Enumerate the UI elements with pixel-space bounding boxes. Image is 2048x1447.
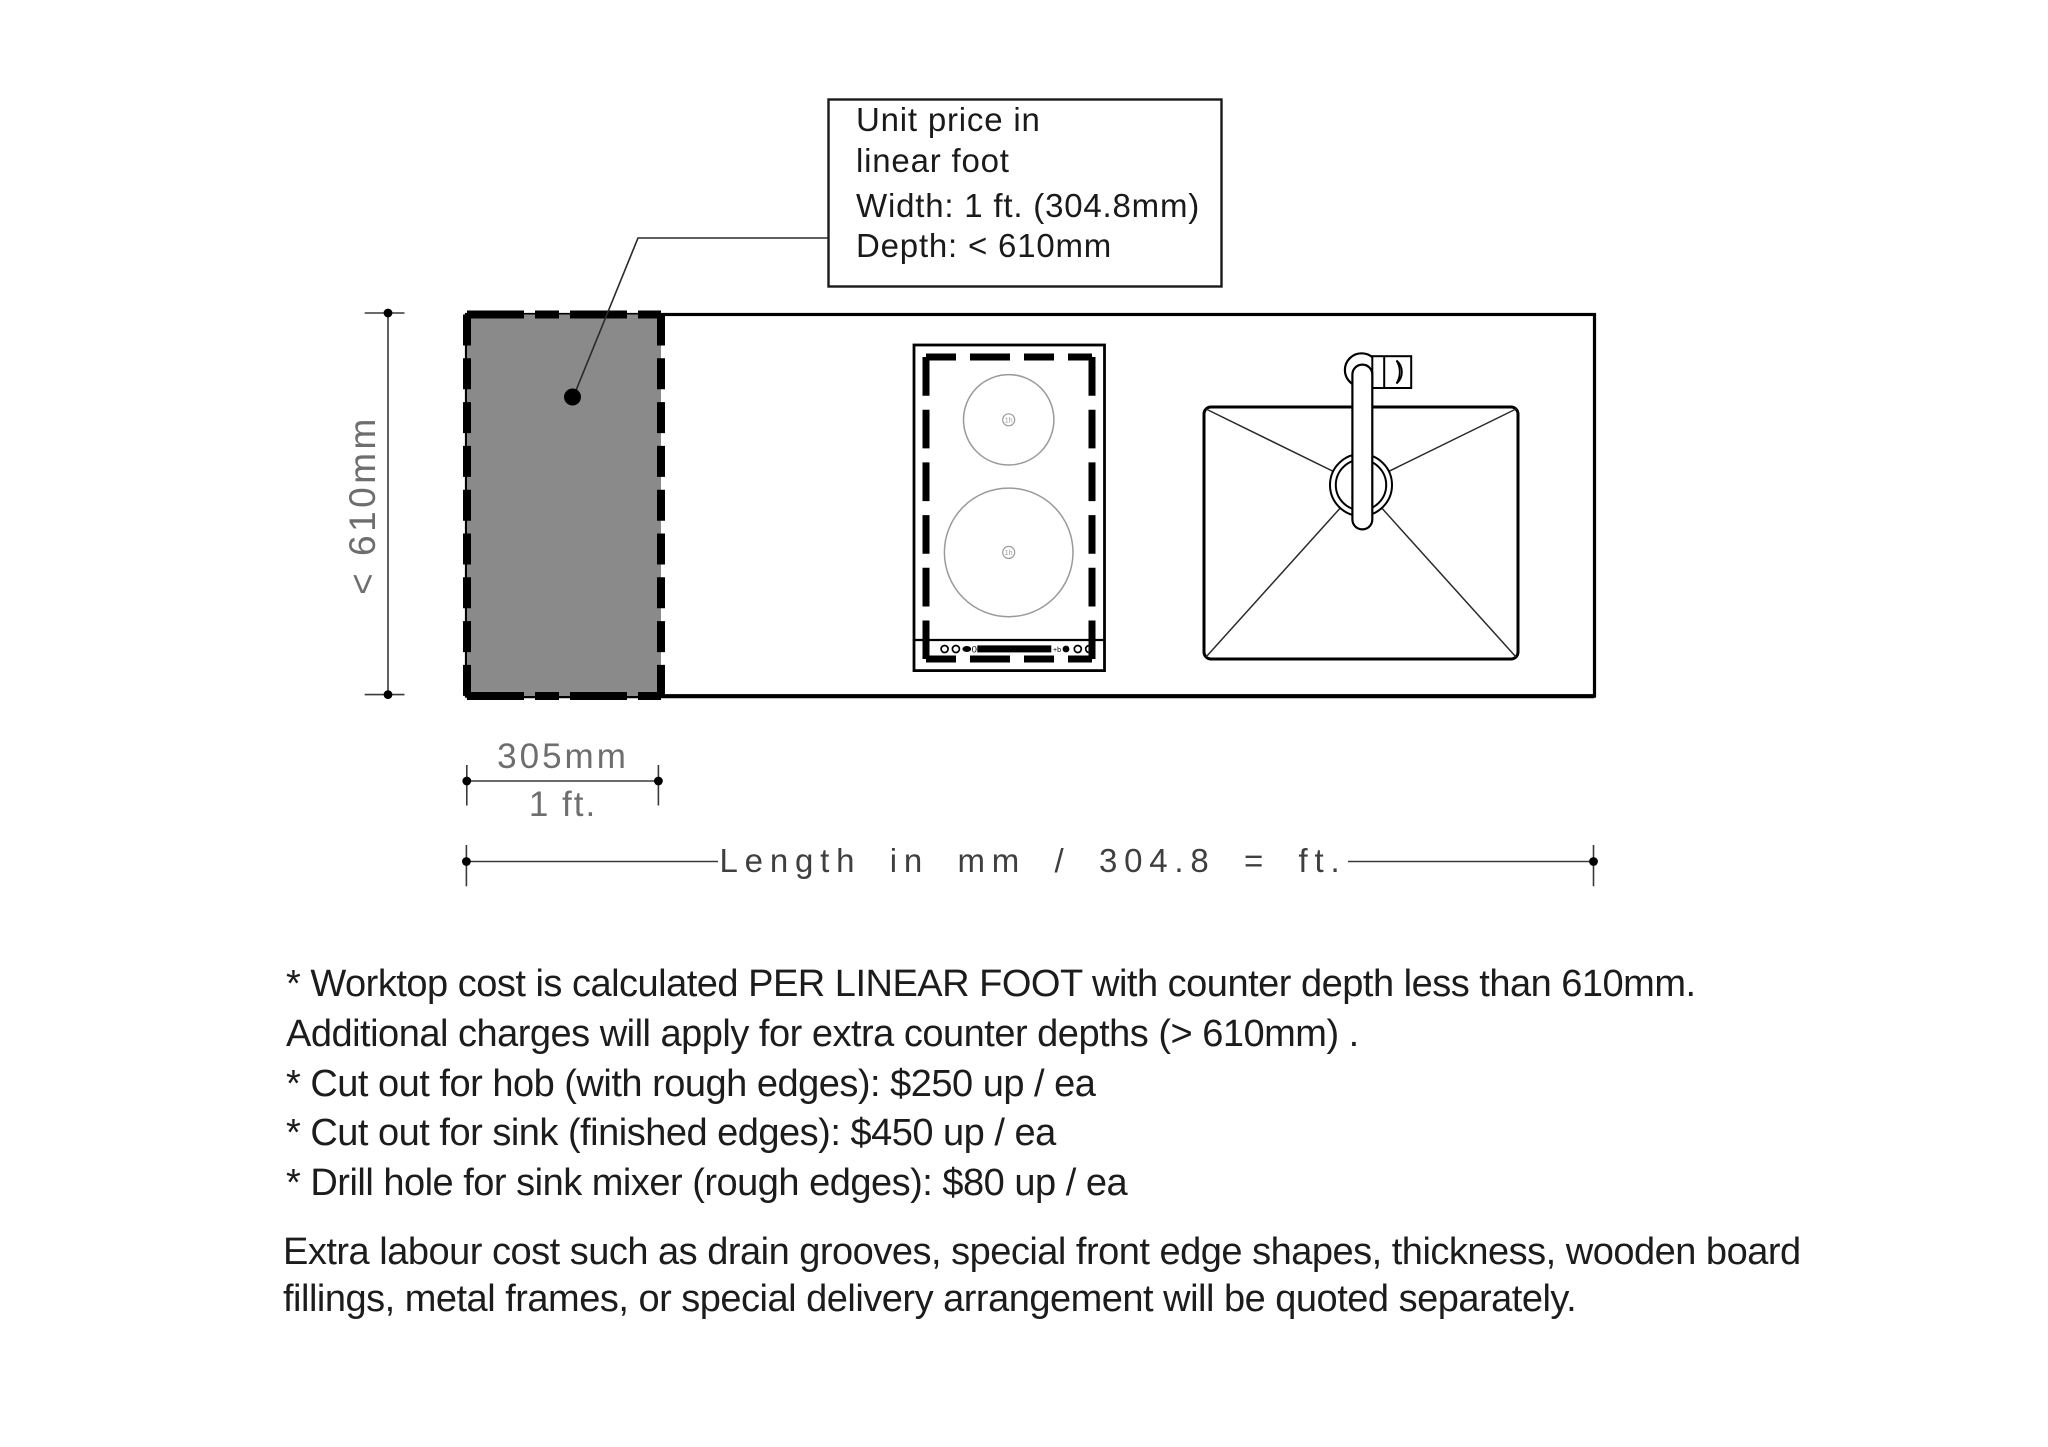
svg-text:Depth: < 610mm: Depth: < 610mm [856,227,1112,264]
svg-text:Unit price in: Unit price in [856,101,1041,138]
svg-text:0: 0 [972,644,977,655]
svg-text:Additional charges will apply: Additional charges will apply for extra … [286,1013,1359,1055]
svg-text:* Cut out for hob (with rough: * Cut out for hob (with rough edges): $2… [286,1063,1097,1105]
svg-text:linear foot: linear foot [856,142,1010,179]
svg-text:+b: +b [1053,647,1061,654]
svg-text:* Worktop cost is calculated P: * Worktop cost is calculated PER LINEAR … [286,963,1696,1005]
svg-text:305mm: 305mm [497,737,629,776]
svg-text:1h: 1h [1005,550,1013,557]
svg-text:* Drill hole for sink mixer (r: * Drill hole for sink mixer (rough edges… [286,1162,1128,1204]
svg-text:fillings, metal frames, or spe: fillings, metal frames, or special deliv… [283,1278,1576,1320]
svg-text:Width: 1 ft. (304.8mm): Width: 1 ft. (304.8mm) [856,187,1200,224]
svg-text:< 610mm: < 610mm [342,415,383,595]
svg-text:Extra labour cost such as drai: Extra labour cost such as drain grooves,… [283,1231,1801,1273]
svg-text:Length in mm / 304.8 =: Length in mm / 304.8 = ft. [720,842,1347,879]
svg-text:* Cut out for sink (finished e: * Cut out for sink (finished edges): $45… [286,1112,1057,1154]
svg-text:1 ft.: 1 ft. [529,785,597,824]
svg-text:1h: 1h [1005,418,1013,425]
